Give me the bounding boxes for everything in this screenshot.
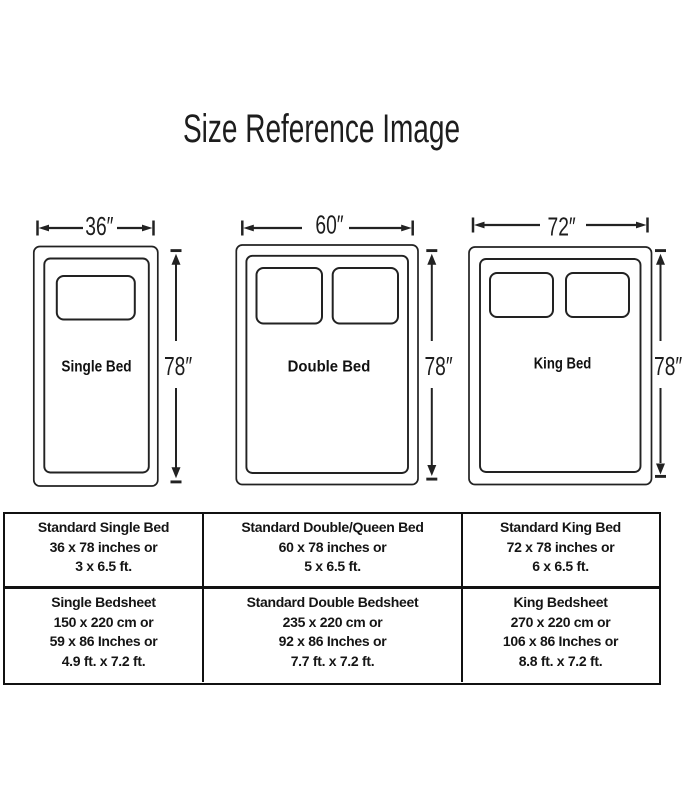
svg-text:78″: 78″ (425, 351, 453, 381)
svg-text:Double Bed: Double Bed (288, 358, 371, 376)
svg-text:King Bed: King Bed (534, 355, 592, 372)
svg-text:78″: 78″ (654, 351, 682, 381)
svg-text:60″: 60″ (315, 210, 343, 240)
svg-text:72″: 72″ (548, 212, 576, 242)
svg-text:78″: 78″ (164, 351, 192, 381)
svg-text:Single Bed: Single Bed (61, 359, 131, 376)
svg-text:36″: 36″ (85, 211, 113, 241)
